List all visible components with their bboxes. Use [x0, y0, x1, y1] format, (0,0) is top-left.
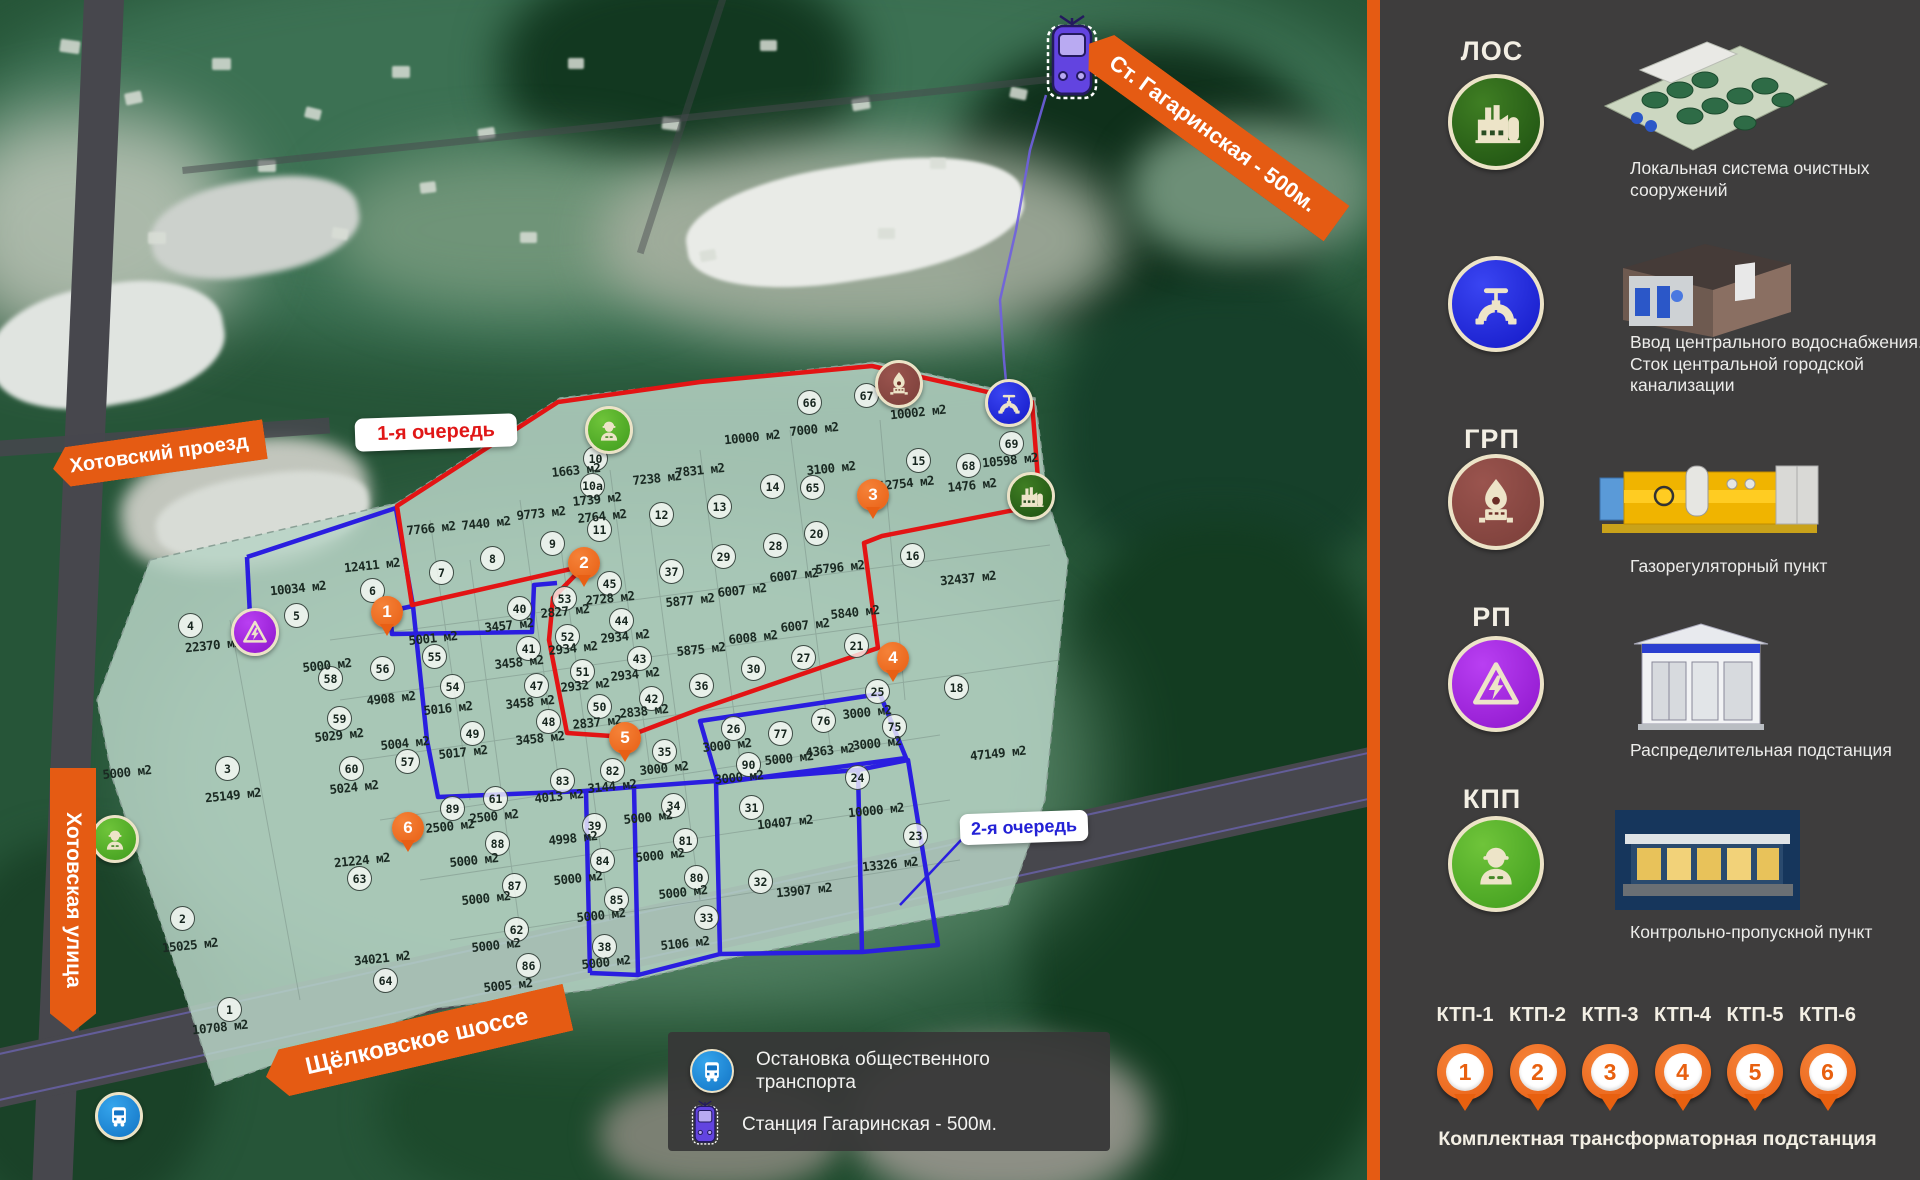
- plot-number: 18: [944, 675, 969, 700]
- water-valve-icon: [1448, 256, 1536, 344]
- worker-icon: [585, 406, 633, 454]
- plot-number: 14: [760, 474, 785, 499]
- ktp-legend-pin-2: 2: [1510, 1044, 1566, 1100]
- road-banner-khotovskaya-ulitsa: Хотовская улица: [50, 768, 96, 1032]
- ktp-map-pin-6: 6: [392, 812, 424, 844]
- plot-number: 36: [689, 673, 714, 698]
- plot-number: 5: [284, 603, 309, 628]
- plot-number: 29: [711, 544, 736, 569]
- worker-icon: [91, 815, 139, 863]
- plot-number: 13: [707, 494, 732, 519]
- plot-number: 32: [748, 869, 773, 894]
- ktp-label-3: КТП-3: [1570, 1004, 1650, 1027]
- worker-icon: [1448, 816, 1536, 904]
- gas-flame-icon: [1448, 454, 1536, 542]
- plot-number: 63: [347, 866, 372, 891]
- site-overlay: [0, 0, 1367, 1180]
- water-valve-icon: [985, 379, 1033, 427]
- plot-number: 65: [800, 475, 825, 500]
- ktp-legend-pin-5: 5: [1727, 1044, 1783, 1100]
- factory-icon: [1448, 74, 1536, 162]
- plot-number: 3: [215, 756, 240, 781]
- plot-number: 7: [429, 560, 454, 585]
- legend-sidebar: ЛОС Локальная система очистных сооружени…: [1380, 0, 1920, 1180]
- transport-legend-text: Остановка общественного транспорта: [756, 1048, 1086, 1094]
- rp-abbr: РП: [1412, 602, 1572, 633]
- kpp-desc: Контрольно-пропускной пункт: [1630, 922, 1920, 944]
- grp-desc: Газорегуляторный пункт: [1630, 556, 1910, 578]
- plot-number: 4: [178, 613, 203, 638]
- plot-number: 24: [845, 765, 870, 790]
- plot-number: 12: [649, 502, 674, 527]
- ktp-map-pin-1: 1: [371, 596, 403, 628]
- ktp-legend-pin-1: 1: [1437, 1044, 1493, 1100]
- ktp-caption: Комплектная трансформаторная подстанция: [1420, 1128, 1895, 1151]
- plot-number: 15: [906, 448, 931, 473]
- los-photo: [1585, 28, 1835, 156]
- ktp-map-pin-2: 2: [568, 547, 600, 579]
- phase1-badge: 1-я очередь: [354, 413, 517, 452]
- bus-icon: [690, 1049, 734, 1093]
- kpp-photo: [1615, 810, 1800, 910]
- plot-number: 8: [480, 546, 505, 571]
- rp-desc: Распределительная подстанция: [1630, 740, 1920, 762]
- plot-number: 16: [900, 543, 925, 568]
- transport-legend-text: Станция Гагаринская - 500м.: [742, 1113, 1072, 1136]
- infographic-root: 101663 м210а1739 м2112764 м2127238 м2137…: [0, 0, 1920, 1180]
- plot-number: 21: [844, 633, 869, 658]
- plot-number: 76: [811, 708, 836, 733]
- plot-number: 57: [395, 749, 420, 774]
- ktp-label-1: КТП-1: [1425, 1004, 1505, 1027]
- grp-photo: [1592, 450, 1837, 544]
- plot-number: 2: [170, 906, 195, 931]
- ktp-label-2: КТП-2: [1498, 1004, 1578, 1027]
- tram-route-line: [1000, 95, 1046, 392]
- ktp-map-pin-3: 3: [857, 479, 889, 511]
- tram-icon: [690, 1098, 720, 1151]
- rp-photo: [1630, 616, 1772, 732]
- ktp-legend-pin-6: 6: [1800, 1044, 1856, 1100]
- bus-icon: [95, 1092, 143, 1140]
- water-desc: Ввод центрального водоснабжения. Сток це…: [1630, 332, 1920, 397]
- ktp-label-4: КТП-4: [1643, 1004, 1723, 1027]
- transport-legend-box: Остановка общественного транспорта Станц…: [668, 1032, 1110, 1151]
- ktp-map-pin-5: 5: [609, 722, 641, 754]
- sidebar-divider: [1367, 0, 1380, 1180]
- gas-flame-icon: [875, 360, 923, 408]
- plot-number: 20: [804, 521, 829, 546]
- plot-number: 55: [422, 644, 447, 669]
- plot-number: 66: [797, 390, 822, 415]
- grp-abbr: ГРП: [1412, 424, 1572, 455]
- ktp-label-6: КТП-6: [1788, 1004, 1868, 1027]
- los-abbr: ЛОС: [1412, 36, 1572, 67]
- plot-number: 77: [768, 721, 793, 746]
- ktp-label-5: КТП-5: [1715, 1004, 1795, 1027]
- kpp-abbr: КПП: [1412, 784, 1572, 815]
- plot-number: 27: [791, 645, 816, 670]
- plot-number: 33: [694, 905, 719, 930]
- water-photo: [1615, 240, 1800, 338]
- ktp-legend-pin-4: 4: [1655, 1044, 1711, 1100]
- plot-number: 9: [540, 531, 565, 556]
- satellite-map: 101663 м210а1739 м2112764 м2127238 м2137…: [0, 0, 1367, 1180]
- los-desc: Локальная система очистных сооружений: [1630, 158, 1910, 201]
- factory-icon: [1007, 472, 1055, 520]
- electric-hazard-icon: [231, 608, 279, 656]
- plot-number: 23: [903, 823, 928, 848]
- ktp-map-pin-4: 4: [877, 642, 909, 674]
- plot-number: 30: [741, 656, 766, 681]
- plot-number: 37: [659, 559, 684, 584]
- plot-number: 60: [339, 756, 364, 781]
- plot-number: 56: [370, 656, 395, 681]
- electric-hazard-icon: [1448, 636, 1536, 724]
- ktp-legend-pin-3: 3: [1582, 1044, 1638, 1100]
- plot-number: 54: [440, 674, 465, 699]
- plot-number: 64: [373, 968, 398, 993]
- plot-number: 68: [956, 453, 981, 478]
- phase2-badge: 2-я очередь: [959, 810, 1088, 845]
- plot-number: 28: [763, 533, 788, 558]
